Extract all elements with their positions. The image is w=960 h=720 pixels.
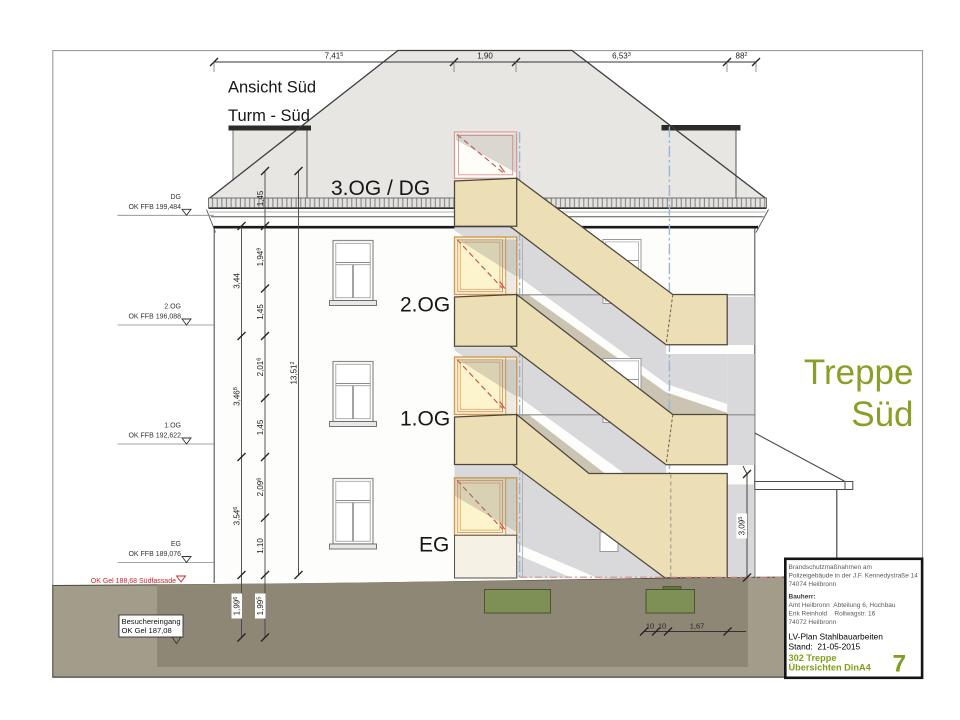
- svg-text:OK FFB 196,088: OK FFB 196,088: [128, 314, 181, 321]
- svg-text:1.OG: 1.OG: [400, 408, 450, 431]
- svg-text:3,44: 3,44: [233, 273, 242, 289]
- svg-text:EG: EG: [171, 541, 181, 548]
- svg-text:Brandschutzmaßnahmen am: Brandschutzmaßnahmen am: [789, 564, 872, 571]
- svg-text:EG: EG: [419, 534, 449, 557]
- svg-text:OK Gel 187,08: OK Gel 187,08: [122, 626, 172, 635]
- svg-text:OK FFB 199,484: OK FFB 199,484: [128, 204, 181, 211]
- svg-text:1,90: 1,90: [477, 52, 493, 61]
- svg-text:Bauherr:: Bauherr:: [789, 594, 816, 601]
- svg-text:1,10: 1,10: [256, 538, 265, 554]
- svg-text:Süd: Süd: [851, 395, 913, 434]
- svg-text:OK Gel 188,68 Südfassade: OK Gel 188,68 Südfassade: [91, 578, 176, 585]
- svg-text:10: 10: [646, 622, 654, 631]
- svg-text:1,45: 1,45: [256, 190, 265, 206]
- svg-text:Erik Reinhold Rollwagstr. 1: Erik Reinhold Rollwagstr. 16: [789, 611, 876, 618]
- svg-text:1,67: 1,67: [690, 622, 705, 631]
- svg-text:3.OG / DG: 3.OG / DG: [331, 177, 430, 200]
- svg-text:OK FFB 192,622: OK FFB 192,622: [128, 433, 181, 440]
- svg-text:OK FFB 189,076: OK FFB 189,076: [128, 551, 181, 558]
- svg-text:2.OG: 2.OG: [400, 294, 450, 317]
- svg-text:74074 Heilbronn: 74074 Heilbronn: [789, 581, 837, 588]
- svg-text:7: 7: [893, 651, 907, 678]
- svg-text:302 Treppe: 302 Treppe: [789, 653, 837, 663]
- svg-text:Ansicht Süd: Ansicht Süd: [228, 79, 316, 97]
- svg-text:Polizeigebäude in der J.F. Ken: Polizeigebäude in der J.F. Kennedystraße…: [789, 573, 919, 580]
- svg-text:13,512: 13,512: [290, 361, 299, 384]
- svg-text:Stand: 21-05-2015: Stand: 21-05-2015: [789, 642, 861, 652]
- svg-text:Besuchereingang: Besuchereingang: [122, 617, 181, 626]
- svg-text:Übersichten DinA4: Übersichten DinA4: [789, 663, 872, 673]
- svg-text:1,45: 1,45: [256, 304, 265, 320]
- svg-text:LV-Plan Stahlbauarbeiten: LV-Plan Stahlbauarbeiten: [789, 631, 884, 641]
- svg-text:1,45: 1,45: [256, 419, 265, 435]
- svg-text:Turm - Süd: Turm - Süd: [228, 107, 310, 125]
- svg-text:1.OG: 1.OG: [164, 423, 181, 430]
- svg-text:DG: DG: [171, 194, 182, 201]
- svg-text:Treppe: Treppe: [804, 353, 914, 392]
- svg-text:10: 10: [658, 622, 666, 631]
- svg-text:2.OG: 2.OG: [164, 304, 181, 311]
- svg-text:Amt Heilbronn Abteilung 6, Ho: Amt Heilbronn Abteilung 6, Hochbau: [789, 602, 896, 609]
- svg-text:74072 Heilbronn: 74072 Heilbronn: [789, 619, 837, 626]
